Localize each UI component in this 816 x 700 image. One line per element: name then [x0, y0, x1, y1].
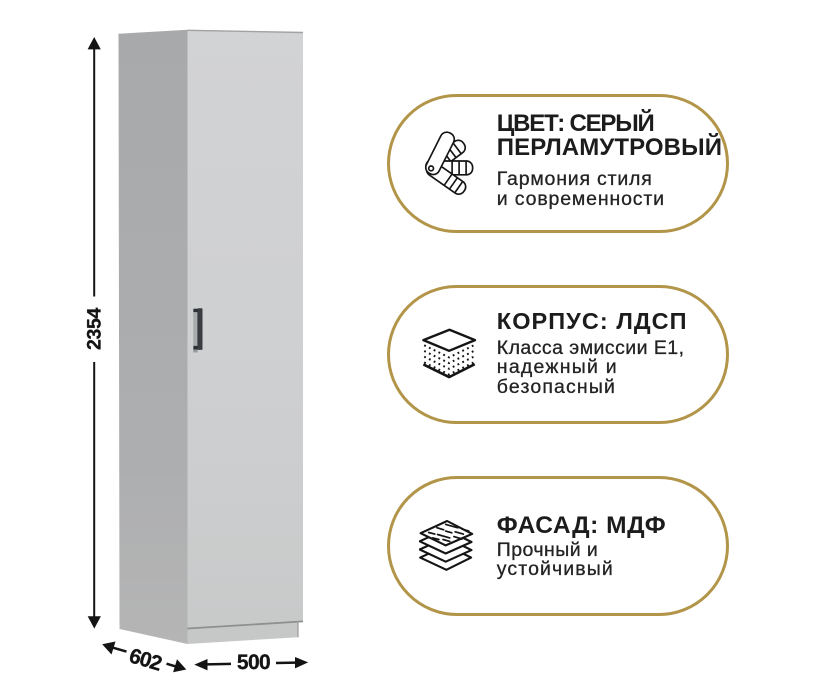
svg-text:500: 500	[237, 651, 270, 674]
svg-text:602: 602	[127, 644, 165, 675]
svg-text:2354: 2354	[84, 308, 106, 350]
